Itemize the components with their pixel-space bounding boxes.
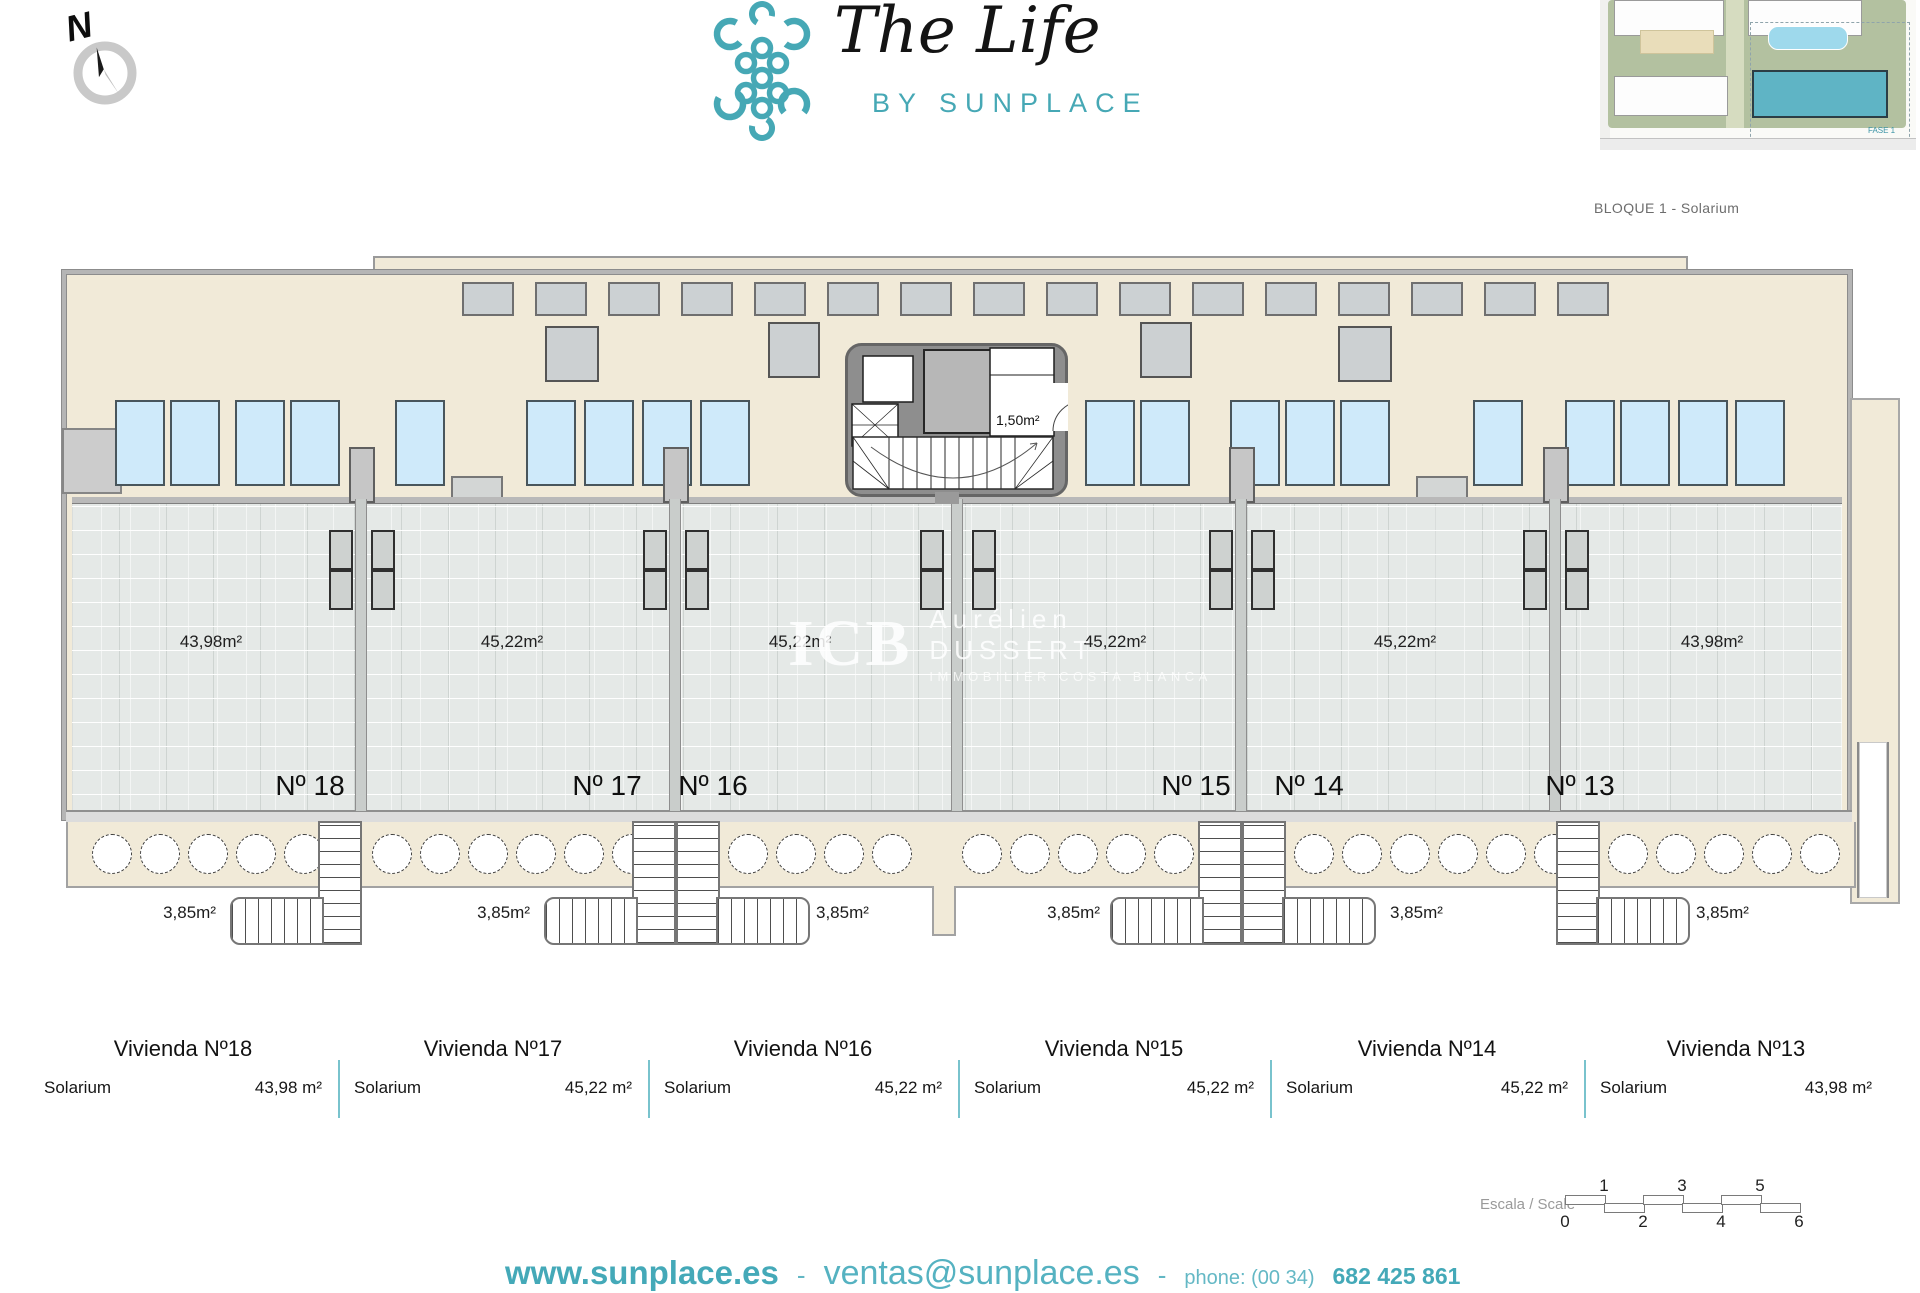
scale-bar-label: Escala / Scale	[1480, 1196, 1575, 1213]
scale-tick: 3	[1667, 1176, 1697, 1196]
planter-circle	[1656, 834, 1696, 874]
planter-circle	[1342, 834, 1382, 874]
table-row: Solarium 45,22 m²	[340, 1078, 646, 1098]
site-deck	[1640, 30, 1714, 54]
site-path	[1726, 0, 1744, 128]
sun-lounger	[1085, 400, 1135, 486]
roof-panel	[1411, 282, 1463, 316]
roof-panel	[681, 282, 733, 316]
table-row-value: 45,22 m²	[565, 1078, 632, 1098]
table-row-label: Solarium	[664, 1078, 731, 1098]
unit-number-label: Nº 15	[1131, 770, 1261, 802]
core-wall-stub	[935, 492, 959, 504]
scale-tick: 5	[1745, 1176, 1775, 1196]
unit-area-label: 45,22m²	[740, 632, 860, 652]
site-building-c	[1614, 76, 1728, 116]
unit-area-label: 43,98m²	[151, 632, 271, 652]
exterior-stair-run	[1110, 897, 1204, 945]
planter-row	[962, 834, 1194, 874]
divider-planter	[920, 530, 944, 570]
sunplace-logo-ornament-icon	[700, 0, 824, 142]
divider-planter	[371, 530, 395, 570]
footer-separator: -	[1158, 1260, 1167, 1291]
roof-panel	[1557, 282, 1609, 316]
unit-area-label: 45,22m²	[452, 632, 572, 652]
stair-area-label: 3,85m²	[1696, 903, 1794, 923]
left-wall-cabinet	[62, 428, 122, 494]
exterior-stair-flight	[1242, 821, 1286, 945]
divider-planter	[643, 570, 667, 610]
sun-lounger	[170, 400, 220, 486]
sun-lounger	[1735, 400, 1785, 486]
core-room-area-label: 1,50m²	[996, 412, 1040, 428]
table-column-title: Vivienda Nº16	[650, 1036, 956, 1062]
logo-subtitle: BY SUNPLACE	[872, 88, 1149, 119]
stair-area-label: 3,85m²	[1390, 903, 1488, 923]
scale-segment	[1721, 1195, 1762, 1205]
divider-planter	[1251, 530, 1275, 570]
exterior-stair-flight	[676, 821, 720, 945]
roof-panel	[608, 282, 660, 316]
table-row-value: 45,22 m²	[875, 1078, 942, 1098]
planter-circle	[1390, 834, 1430, 874]
planter-circle	[1752, 834, 1792, 874]
sun-lounger	[1620, 400, 1670, 486]
table-row: Solarium 43,98 m²	[1586, 1078, 1886, 1098]
divider-planter	[1565, 570, 1589, 610]
roof-panel	[1484, 282, 1536, 316]
table-row-value: 43,98 m²	[1805, 1078, 1872, 1098]
stair-area-label: 3,85m²	[432, 903, 530, 923]
scale-tick: 4	[1706, 1212, 1736, 1232]
planter-circle	[188, 834, 228, 874]
exterior-stair-flight	[632, 821, 676, 945]
planter-circle	[1800, 834, 1840, 874]
table-column-title: Vivienda Nº18	[30, 1036, 336, 1062]
planter-circle	[1294, 834, 1334, 874]
planter-circle	[728, 834, 768, 874]
unit-divider-wall	[1235, 499, 1247, 811]
exterior-stair-run	[1282, 897, 1376, 945]
exterior-stair-run	[1596, 897, 1690, 945]
table-row-label: Solarium	[1286, 1078, 1353, 1098]
divider-planter	[329, 530, 353, 570]
footer-phone-number[interactable]: 682 425 861	[1333, 1263, 1461, 1290]
walkway-stub	[932, 886, 956, 936]
sun-lounger	[290, 400, 340, 486]
divider-planter	[371, 570, 395, 610]
floor-plan-sheet: { "header": { "compass_label": "N", "log…	[0, 0, 1920, 1280]
divider-planter	[920, 570, 944, 610]
right-side-railing	[1857, 742, 1889, 898]
site-fase-label: FASE 1	[1868, 126, 1895, 135]
unit-divider-wall	[1549, 499, 1561, 811]
planter-circle	[564, 834, 604, 874]
planter-circle	[776, 834, 816, 874]
divider-planter	[685, 570, 709, 610]
planter-circle	[516, 834, 556, 874]
divider-post	[1229, 447, 1255, 503]
table-column-vivienda-17: Vivienda Nº17 Solarium 45,22 m²	[340, 1036, 646, 1120]
table-column-vivienda-14: Vivienda Nº14 Solarium 45,22 m²	[1272, 1036, 1582, 1120]
roof-panel	[1119, 282, 1171, 316]
planter-circle	[92, 834, 132, 874]
divider-planter	[685, 530, 709, 570]
table-column-title: Vivienda Nº14	[1272, 1036, 1582, 1062]
table-row-label: Solarium	[44, 1078, 111, 1098]
exterior-stair-flight	[1198, 821, 1242, 945]
table-row-value: 43,98 m²	[255, 1078, 322, 1098]
planter-circle	[236, 834, 276, 874]
scale-tick: 6	[1784, 1212, 1814, 1232]
terrace-pergola	[768, 322, 820, 378]
planter-row	[728, 834, 912, 874]
unit-area-label: 45,22m²	[1055, 632, 1175, 652]
divider-planter	[1209, 530, 1233, 570]
roof-panel	[827, 282, 879, 316]
site-road-bottom	[1600, 138, 1916, 150]
stair-area-label: 3,85m²	[1002, 903, 1100, 923]
table-column-vivienda-16: Vivienda Nº16 Solarium 45,22 m²	[650, 1036, 956, 1120]
planter-circle	[1058, 834, 1098, 874]
divider-planter	[972, 530, 996, 570]
planter-circle	[1154, 834, 1194, 874]
unit-number-label: Nº 16	[648, 770, 778, 802]
stair-area-label: 3,85m²	[816, 903, 914, 923]
site-plan-thumbnail: FASE 1	[1600, 0, 1916, 150]
elevator-shaft	[924, 350, 998, 433]
terrace-pergola	[545, 326, 599, 382]
roof-panel	[1046, 282, 1098, 316]
sun-lounger	[235, 400, 285, 486]
unit-area-label: 45,22m²	[1345, 632, 1465, 652]
central-divider-wall	[951, 499, 963, 811]
table-row: Solarium 45,22 m²	[1272, 1078, 1582, 1098]
compass-icon	[70, 38, 140, 108]
table-column-title: Vivienda Nº17	[340, 1036, 646, 1062]
roof-panel	[900, 282, 952, 316]
sun-lounger	[1565, 400, 1615, 486]
unit-number-label: Nº 14	[1244, 770, 1374, 802]
roof-panel	[1192, 282, 1244, 316]
table-row: Solarium 45,22 m²	[650, 1078, 956, 1098]
table-row-label: Solarium	[354, 1078, 421, 1098]
planter-circle	[1438, 834, 1478, 874]
table-column-vivienda-15: Vivienda Nº15 Solarium 45,22 m²	[960, 1036, 1268, 1120]
sun-lounger	[115, 400, 165, 486]
divider-post	[663, 447, 689, 503]
site-plan-caption: BLOQUE 1 - Solarium	[1594, 200, 1739, 216]
divider-planter	[1251, 570, 1275, 610]
roof-panel	[754, 282, 806, 316]
table-column-title: Vivienda Nº13	[1586, 1036, 1886, 1062]
sun-lounger	[1473, 400, 1523, 486]
logo-title: The Life	[834, 0, 1101, 68]
planter-circle	[140, 834, 180, 874]
scale-tick: 2	[1628, 1212, 1658, 1232]
planter-circle	[1106, 834, 1146, 874]
footer-contact-bar: www.sunplace.es - ventas@sunplace.es - p…	[505, 1254, 1460, 1293]
table-row-label: Solarium	[1600, 1078, 1667, 1098]
planter-row	[372, 834, 652, 874]
divider-post	[1543, 447, 1569, 503]
footer-website-link[interactable]: www.sunplace.es	[505, 1254, 779, 1292]
table-column-title: Vivienda Nº15	[960, 1036, 1268, 1062]
footer-email-link[interactable]: ventas@sunplace.es	[824, 1254, 1140, 1293]
planter-circle	[372, 834, 412, 874]
planter-row	[1608, 834, 1840, 874]
planter-circle	[420, 834, 460, 874]
table-column-vivienda-13: Vivienda Nº13 Solarium 43,98 m²	[1586, 1036, 1886, 1120]
sun-lounger	[700, 400, 750, 486]
planter-circle	[1486, 834, 1526, 874]
roof-panel-row	[462, 282, 1609, 316]
planter-circle	[1010, 834, 1050, 874]
site-highlighted-block	[1752, 70, 1888, 118]
table-column-vivienda-18: Vivienda Nº18 Solarium 43,98 m²	[30, 1036, 336, 1120]
sun-lounger	[526, 400, 576, 486]
exterior-stair-flight	[1556, 821, 1600, 945]
divider-planter	[329, 570, 353, 610]
planter-circle	[824, 834, 864, 874]
roof-panel	[1265, 282, 1317, 316]
sun-lounger	[1285, 400, 1335, 486]
unit-area-label: 43,98m²	[1652, 632, 1772, 652]
planter-circle	[962, 834, 1002, 874]
planter-row	[92, 834, 324, 874]
sun-lounger	[1340, 400, 1390, 486]
planter-circle	[1608, 834, 1648, 874]
scale-segment	[1643, 1195, 1684, 1205]
scale-segment	[1565, 1195, 1606, 1205]
divider-post	[349, 447, 375, 503]
sun-lounger	[1140, 400, 1190, 486]
unit-divider-wall	[355, 499, 367, 811]
planter-row	[1294, 834, 1574, 874]
unit-number-label: Nº 18	[245, 770, 375, 802]
roof-panel	[973, 282, 1025, 316]
unit-divider-wall	[669, 499, 681, 811]
exterior-stair-run	[230, 897, 324, 945]
exterior-stair-flight	[318, 821, 362, 945]
stair-area-label: 3,85m²	[118, 903, 216, 923]
divider-planter	[972, 570, 996, 610]
table-row: Solarium 45,22 m²	[960, 1078, 1268, 1098]
exterior-stair-run	[716, 897, 810, 945]
scale-tick: 0	[1550, 1212, 1580, 1232]
table-row-value: 45,22 m²	[1501, 1078, 1568, 1098]
footer-phone-label: phone: (00 34)	[1184, 1267, 1314, 1290]
sun-lounger	[395, 400, 445, 486]
table-row-label: Solarium	[974, 1078, 1041, 1098]
roof-panel	[462, 282, 514, 316]
planter-circle	[468, 834, 508, 874]
divider-planter	[1523, 530, 1547, 570]
terrace-pergola	[1140, 322, 1192, 378]
table-row-value: 45,22 m²	[1187, 1078, 1254, 1098]
unit-number-label: Nº 13	[1515, 770, 1645, 802]
planter-circle	[1704, 834, 1744, 874]
stair-core: 1,50m²	[845, 343, 1068, 497]
sun-lounger	[584, 400, 634, 486]
roof-panel	[1338, 282, 1390, 316]
divider-planter	[1565, 530, 1589, 570]
divider-planter	[1523, 570, 1547, 610]
table-row: Solarium 43,98 m²	[30, 1078, 336, 1098]
terrace-pergola	[1338, 326, 1392, 382]
sun-lounger	[1678, 400, 1728, 486]
exterior-stair-run	[544, 897, 638, 945]
roof-panel	[535, 282, 587, 316]
scale-tick: 1	[1589, 1176, 1619, 1196]
footer-separator: -	[797, 1260, 806, 1291]
divider-planter	[643, 530, 667, 570]
planter-circle	[872, 834, 912, 874]
divider-planter	[1209, 570, 1233, 610]
